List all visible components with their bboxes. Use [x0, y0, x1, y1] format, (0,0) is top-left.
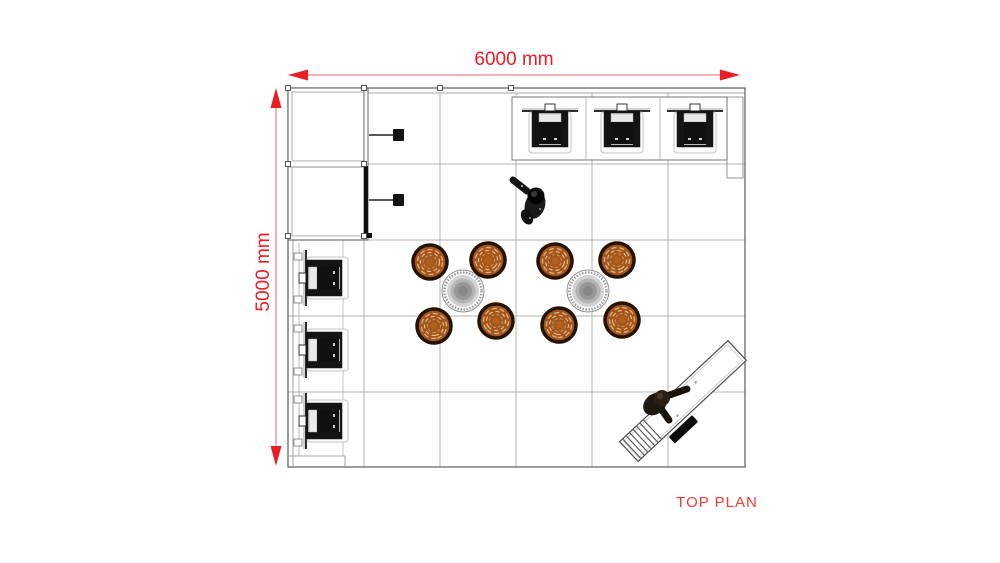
- wall-display-left-1: [299, 250, 348, 306]
- round-table-2: [567, 270, 609, 312]
- reception-desk: [620, 341, 755, 470]
- chair: [413, 245, 447, 279]
- wall-display-left-3: [299, 393, 348, 449]
- chair: [539, 305, 578, 344]
- arrow-down-icon: [271, 446, 282, 466]
- arrow-left-icon: [288, 70, 308, 81]
- dimension-height-label: 5000 mm: [253, 232, 275, 311]
- wall-fixture-bracket: [369, 129, 404, 141]
- wall-display-top-2: [594, 104, 650, 153]
- wall-fixture-bracket: [369, 194, 404, 206]
- wall-display-top-3: [667, 104, 723, 153]
- chair: [533, 239, 577, 283]
- arrow-up-icon: [271, 88, 282, 108]
- person-standing: [513, 180, 549, 227]
- floor-plan-drawing: [0, 0, 1000, 563]
- chair: [600, 298, 644, 342]
- floor-plan-canvas: 6000 mm 5000 mm TOP PLAN: [0, 0, 1000, 563]
- round-table-1: [442, 270, 484, 312]
- wall-display-left-2: [299, 322, 348, 378]
- storage-closet: [288, 88, 372, 240]
- page-title: TOP PLAN: [676, 494, 758, 511]
- wall-display-top-1: [522, 104, 578, 153]
- dimension-line-horizontal: [288, 70, 740, 81]
- dimension-width-label: 6000 mm: [474, 49, 553, 71]
- arrow-right-icon: [720, 70, 740, 81]
- chair: [414, 306, 453, 345]
